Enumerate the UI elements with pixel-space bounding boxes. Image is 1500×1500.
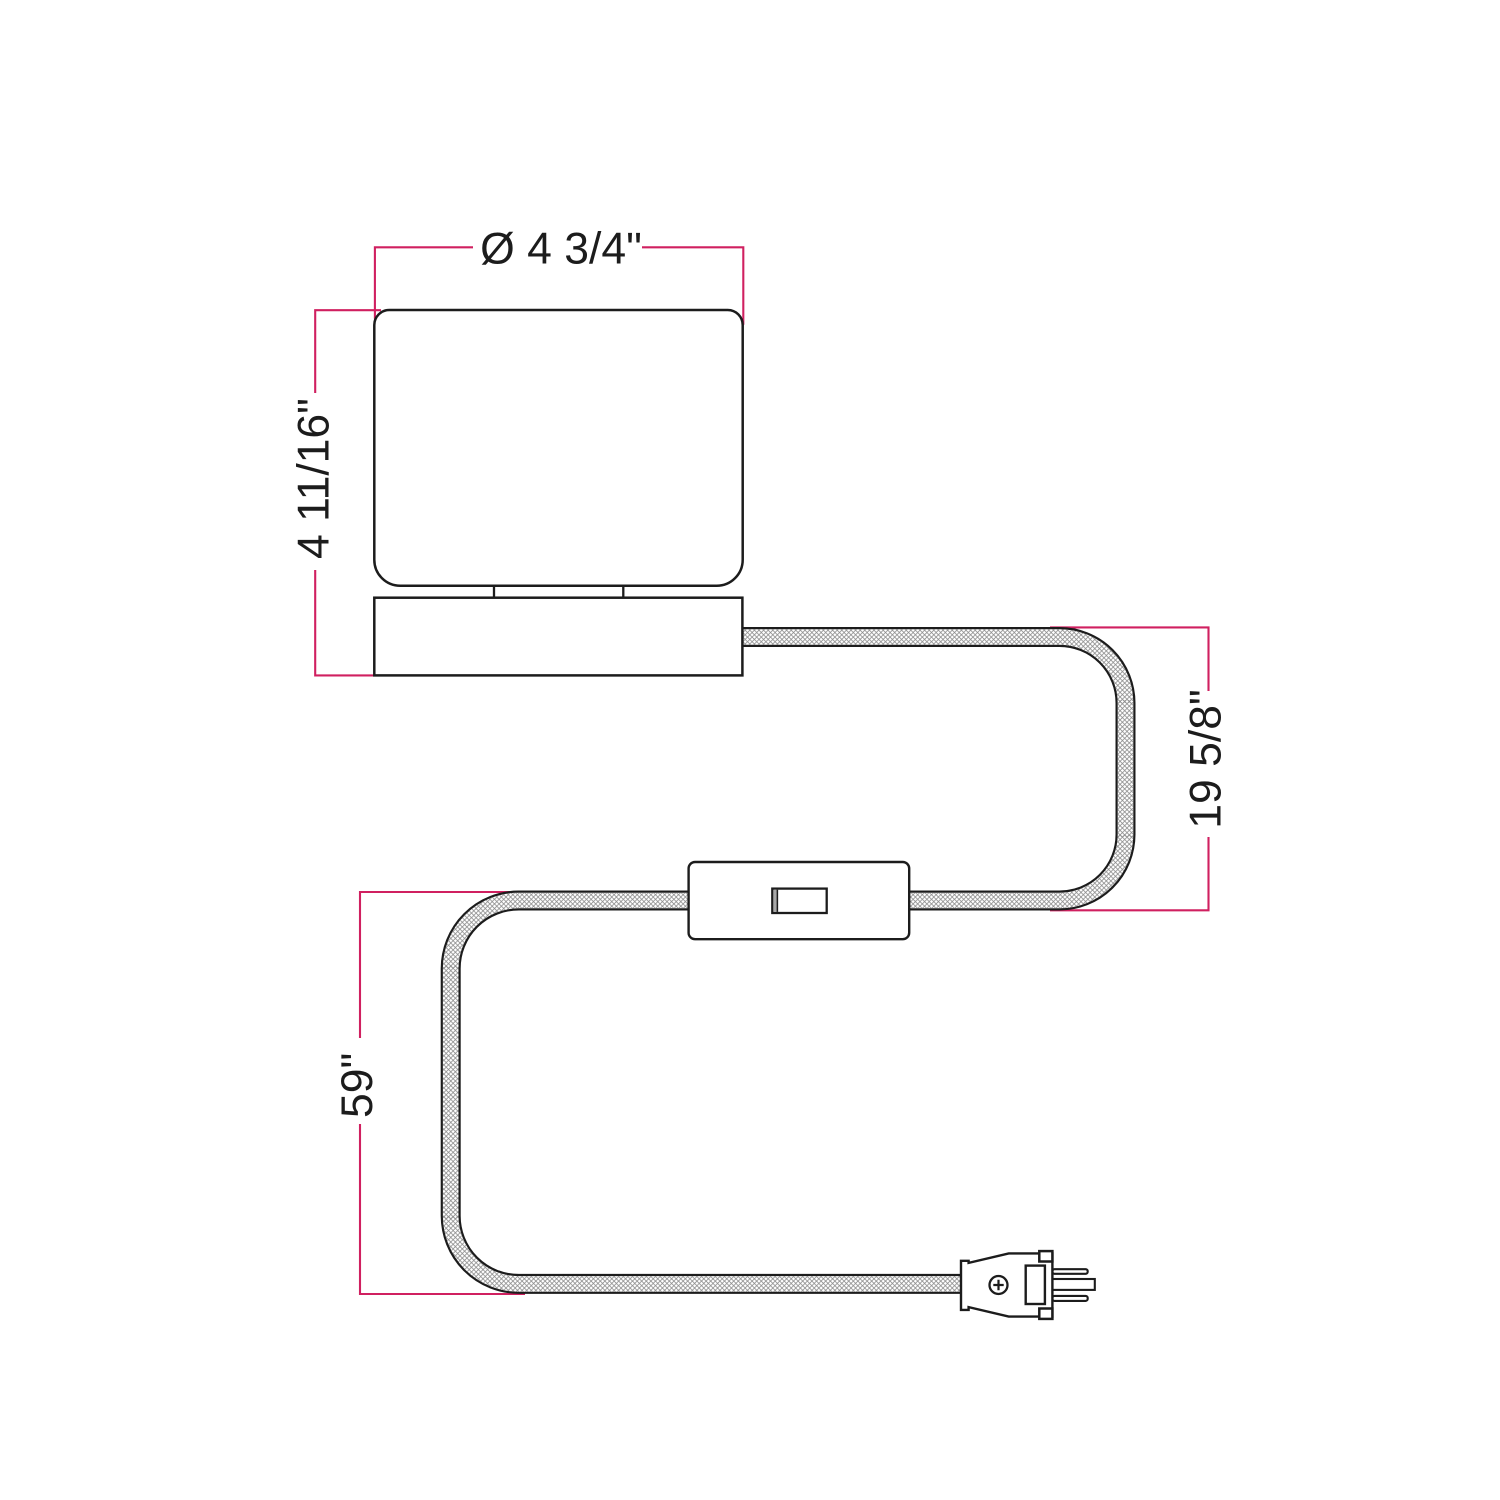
svg-text:59": 59" [333, 1053, 382, 1118]
svg-text:19 5/8": 19 5/8" [1182, 689, 1231, 829]
svg-text:Ø 4 3/4": Ø 4 3/4" [480, 225, 642, 274]
svg-text:4 11/16": 4 11/16" [290, 398, 339, 559]
